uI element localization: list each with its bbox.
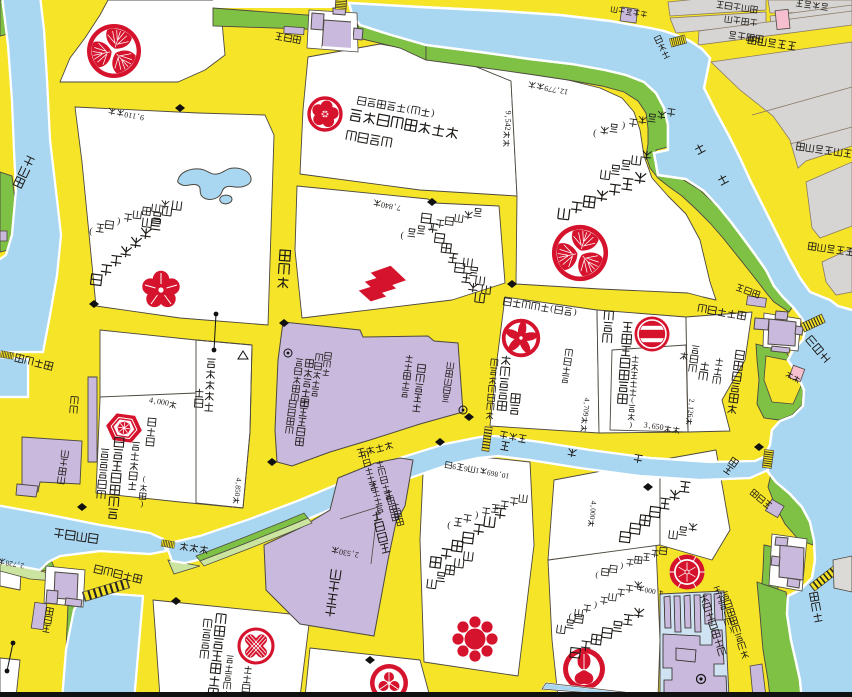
svg-text:,: , (504, 115, 513, 117)
svg-text:9: 9 (504, 110, 513, 114)
svg-text:2: 2 (503, 126, 512, 130)
